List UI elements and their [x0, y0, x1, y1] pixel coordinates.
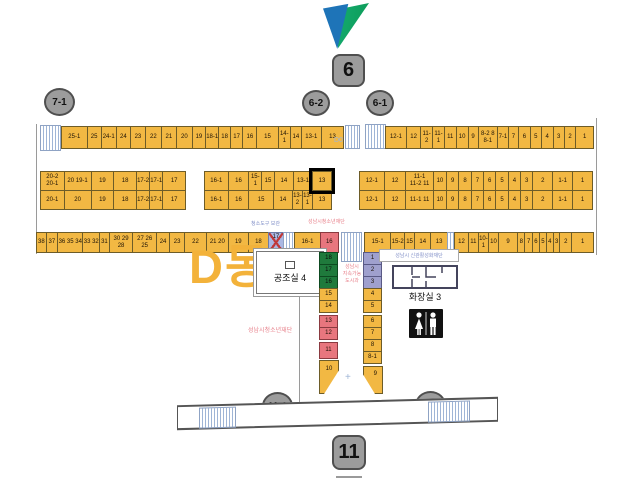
marker-11-underline	[336, 476, 362, 478]
stall-13[interactable]: 13	[312, 190, 332, 210]
stall-12[interactable]: 12	[406, 126, 421, 149]
stall-24-1[interactable]: 24-1	[101, 126, 117, 149]
stall-9-funnel[interactable]: 9	[363, 366, 383, 394]
stall-1[interactable]: 1	[572, 190, 593, 210]
toilet-agency-box: 성남시 신관활성화재단	[379, 249, 459, 262]
right-wall	[596, 118, 597, 255]
row2-right-bottom-strip: 12-11211-1 1110987654321-11	[359, 190, 593, 210]
stall-8[interactable]: 8	[458, 171, 471, 191]
stall-15[interactable]: 15	[248, 190, 273, 210]
stall-12-1[interactable]: 12-1	[359, 171, 385, 191]
stall-16-1[interactable]: 16-1	[204, 190, 229, 210]
stall-11-1-11[interactable]: 11-1 11	[405, 190, 433, 210]
stall-17-1[interactable]: 17-1	[149, 190, 163, 210]
floorplan-canvas: 6 7-1 6-2 6-1 11-1 11-2 11 25-12524-1242…	[0, 0, 640, 480]
row2-left-bottom-strip: 20-120191817-217-117	[40, 190, 186, 210]
row2-left-top-strip: 20-2 20-120 19-1191817-217-117	[40, 171, 186, 191]
stall-18[interactable]: 18	[113, 171, 137, 191]
stall-19[interactable]: 19	[91, 171, 115, 191]
stall-17-2[interactable]: 17-2	[136, 171, 150, 191]
stall-9[interactable]: 9	[446, 171, 459, 191]
toilet-floorplan	[392, 265, 458, 289]
stall-1[interactable]: 1	[571, 232, 594, 253]
stall-12[interactable]: 12	[384, 190, 407, 210]
stairs-corridor-left	[199, 407, 236, 429]
stall-12[interactable]: 12	[319, 327, 338, 340]
stall-16-1[interactable]: 16-1	[294, 232, 320, 253]
stall-10[interactable]: 10	[433, 190, 447, 210]
stall-16-1[interactable]: 16-1	[204, 171, 229, 191]
brand-logo-icon	[323, 3, 369, 49]
stall-23[interactable]: 23	[169, 232, 185, 253]
stall-14[interactable]: 14	[274, 171, 294, 191]
stall-11[interactable]: 11	[319, 342, 338, 359]
stall-23[interactable]: 23	[130, 126, 146, 149]
stall-17[interactable]: 17	[230, 126, 243, 149]
row2-right-top-strip: 12-11211-1 11-2 1110987654321-11	[359, 171, 593, 191]
stall-1[interactable]: 1	[572, 171, 593, 191]
cleaning-storage-label: 청소도구 보관	[251, 221, 280, 228]
exit-marker-6-2: 6-2	[302, 90, 330, 116]
restroom-icon	[409, 309, 443, 338]
hvac-room-label: 공조실 4	[274, 271, 306, 284]
stall-3[interactable]: 3	[520, 190, 533, 210]
stairs-row1-mid-a	[345, 125, 360, 149]
row2-mid-top-strip: 16-11615-1151413-113	[204, 171, 332, 191]
wing-left-column: 1817161514131211	[319, 252, 338, 359]
stall-8-2-8-8-1[interactable]: 8-2 8 8-1	[478, 126, 498, 149]
stairs-row1-mid-b	[365, 124, 386, 149]
stall-14[interactable]: 14	[319, 300, 338, 313]
stall-10-funnel[interactable]: 10	[319, 360, 339, 394]
stairs-corridor-right	[428, 401, 470, 423]
exit-marker-7-1: 7-1	[44, 88, 75, 116]
stall-5[interactable]: 5	[363, 300, 382, 313]
left-agency-label: 성남시청소년재단	[248, 327, 292, 335]
aisle-cross-mark: +	[345, 371, 351, 385]
stall-17[interactable]: 17	[162, 171, 186, 191]
row1-left-strip: 25-12524-124232221201918-11817161514-114…	[61, 126, 344, 149]
stall-17-2[interactable]: 17-2	[136, 190, 150, 210]
stall-25-1[interactable]: 25-1	[61, 126, 88, 149]
stairs-row1-left	[40, 125, 61, 151]
stall-12-1[interactable]: 12-1	[359, 190, 385, 210]
stall-24[interactable]: 24	[116, 126, 131, 149]
stall-6[interactable]: 6	[483, 171, 496, 191]
stall-1[interactable]: 1	[575, 126, 594, 149]
stall-16[interactable]: 16	[242, 126, 257, 149]
stall-18[interactable]: 18	[113, 190, 137, 210]
stall-13[interactable]: 13	[312, 171, 332, 191]
stall-20-1[interactable]: 20-1	[40, 190, 65, 210]
stall-1-1[interactable]: 1-1	[552, 171, 573, 191]
stall-15-1[interactable]: 15-1	[248, 171, 262, 191]
stall-17[interactable]: 17	[268, 232, 284, 253]
row1-right-strip: 12-11211-211-1111098-2 8 8-17-17654321	[385, 126, 594, 149]
stall-10[interactable]: 10	[433, 171, 447, 191]
stall-17-1[interactable]: 17-1	[149, 171, 163, 191]
row2-mid-bottom-strip: 16-116151413-213-113	[204, 190, 332, 210]
stall-21[interactable]: 21	[161, 126, 177, 149]
stall-4[interactable]: 4	[508, 190, 521, 210]
stall-8-1[interactable]: 8-1	[363, 351, 382, 364]
stall-1-1[interactable]: 1-1	[552, 190, 573, 210]
stall-16[interactable]: 16	[228, 190, 250, 210]
stall-30-29-28[interactable]: 30 29 28	[109, 232, 134, 253]
stall-17[interactable]: 17	[162, 190, 186, 210]
row3-left-strip: 383736 35 3433 323130 29 2827 26 2524232…	[36, 232, 339, 253]
stall-8[interactable]: 8	[458, 190, 471, 210]
bottom-corridor	[177, 397, 498, 430]
top-agency-label: 성남시청소년재단	[308, 219, 345, 226]
stall-14-1[interactable]: 14-1	[278, 126, 291, 149]
stall-22[interactable]: 22	[145, 126, 162, 149]
stall-20-2-20-1[interactable]: 20-2 20-1	[40, 171, 65, 191]
stall-18-1[interactable]: 18-1	[205, 126, 219, 149]
stall-15[interactable]: 15	[256, 126, 278, 149]
stall-36-35-34[interactable]: 36 35 34	[57, 232, 83, 253]
hvac-room-icon	[285, 261, 295, 269]
stall-16[interactable]: 16	[228, 171, 250, 191]
d0-drawing-label: D0	[334, 136, 343, 145]
stall-9[interactable]: 9	[446, 190, 459, 210]
stall-20[interactable]: 20	[176, 126, 193, 149]
exit-marker-11: 11	[332, 435, 366, 470]
stall-33-32[interactable]: 33 32	[82, 232, 100, 253]
stall-20[interactable]: 20	[64, 190, 92, 210]
hvac-room: 공조실 4	[256, 251, 324, 294]
stall-13-1[interactable]: 13-1	[301, 126, 322, 149]
stall-19[interactable]: 19	[192, 126, 206, 149]
stall-7[interactable]: 7	[471, 171, 484, 191]
stall-7[interactable]: 7	[471, 190, 484, 210]
stall-19[interactable]: 19	[91, 190, 115, 210]
stall-14[interactable]: 14	[273, 190, 293, 210]
aisle-agency-label: 성남시 지속가능 도시과	[340, 264, 364, 284]
stall-25[interactable]: 25	[87, 126, 102, 149]
stall-3[interactable]: 3	[520, 171, 533, 191]
stall-6[interactable]: 6	[483, 190, 496, 210]
stall-15[interactable]: 15	[261, 171, 275, 191]
toilet-label: 화장실 3	[392, 291, 458, 303]
stall-12[interactable]: 12	[384, 171, 407, 191]
stall-12-1[interactable]: 12-1	[385, 126, 407, 149]
stall-2[interactable]: 2	[532, 171, 553, 191]
stall-24[interactable]: 24	[156, 232, 170, 253]
exit-marker-6-1: 6-1	[366, 90, 394, 116]
stall-5[interactable]: 5	[495, 171, 508, 191]
stall-2[interactable]: 2	[532, 190, 553, 210]
stall-13-1[interactable]: 13-1	[293, 171, 313, 191]
stairs-wing-top	[341, 232, 362, 262]
stall-20-19-1[interactable]: 20 19-1	[64, 171, 92, 191]
wing-right-column: 123456788-1	[363, 252, 382, 364]
exit-marker-6: 6	[332, 54, 365, 87]
stall-9[interactable]: 9	[498, 232, 518, 253]
stall-5[interactable]: 5	[495, 190, 508, 210]
stall-27-26-25[interactable]: 27 26 25	[132, 232, 157, 253]
stall-4[interactable]: 4	[508, 171, 521, 191]
stall-16[interactable]: 16	[320, 232, 339, 253]
stall-11-1-11-2-11[interactable]: 11-1 11-2 11	[405, 171, 433, 191]
